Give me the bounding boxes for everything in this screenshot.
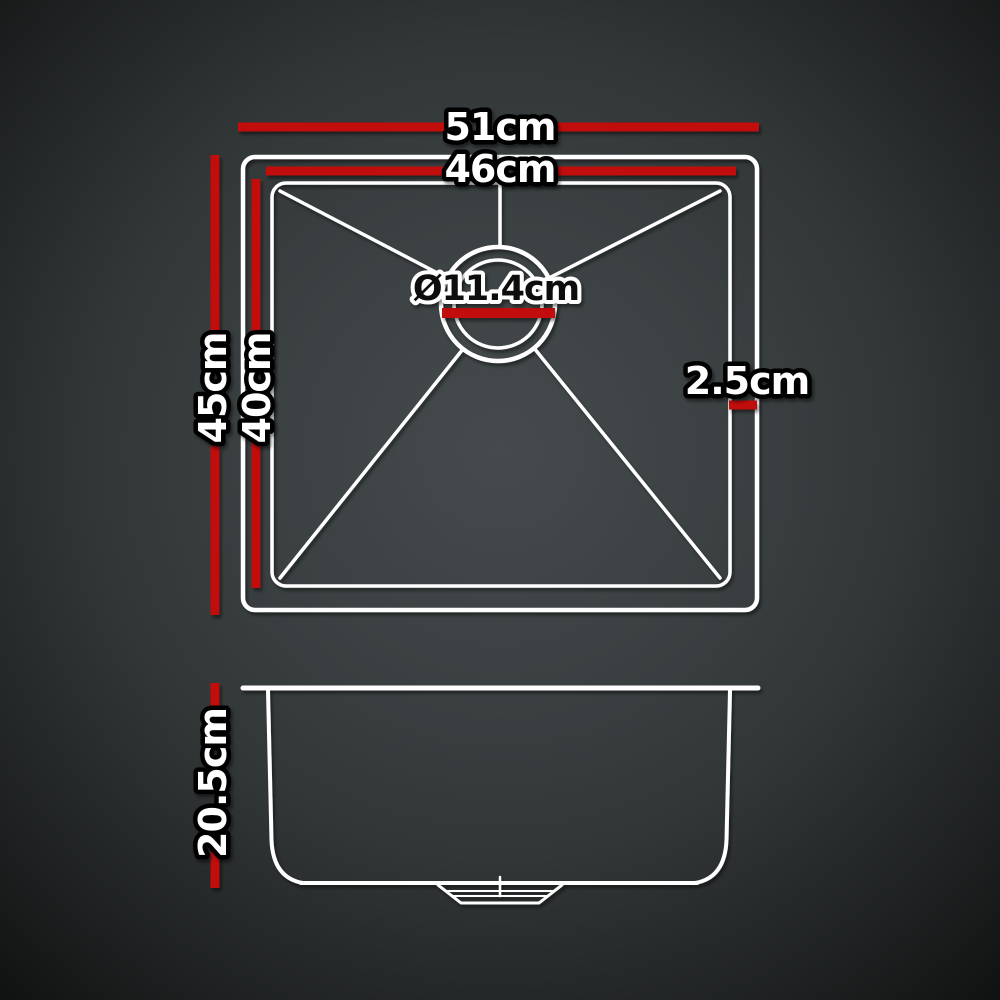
label-inner-width: 46cm xyxy=(444,147,555,191)
sink-dimension-drawing: 51cm 46cm 45cm 40cm 2.5cm Ø11.4cm 20.5cm xyxy=(0,0,1000,1000)
label-drain-diameter: Ø11.4cm xyxy=(413,269,579,309)
product-diagram-canvas: 51cm 46cm 45cm 40cm 2.5cm Ø11.4cm 20.5cm xyxy=(0,0,1000,1000)
label-outer-height: 45cm xyxy=(191,332,235,443)
dimension-lines xyxy=(215,127,759,888)
bowl-slope-line-bottom-left xyxy=(280,349,463,578)
label-bowl-depth: 20.5cm xyxy=(191,708,235,858)
side-view-drawing xyxy=(243,688,758,903)
label-inner-height: 40cm xyxy=(235,332,279,443)
top-view-drawing xyxy=(243,157,757,610)
side-view-left-wall xyxy=(268,691,303,883)
label-rim-thickness: 2.5cm xyxy=(685,359,809,403)
label-outer-width: 51cm xyxy=(444,105,555,149)
bowl-slope-line-top-left xyxy=(280,191,447,278)
bowl-slope-line-top-right xyxy=(549,191,720,278)
side-view-right-wall xyxy=(695,691,730,883)
